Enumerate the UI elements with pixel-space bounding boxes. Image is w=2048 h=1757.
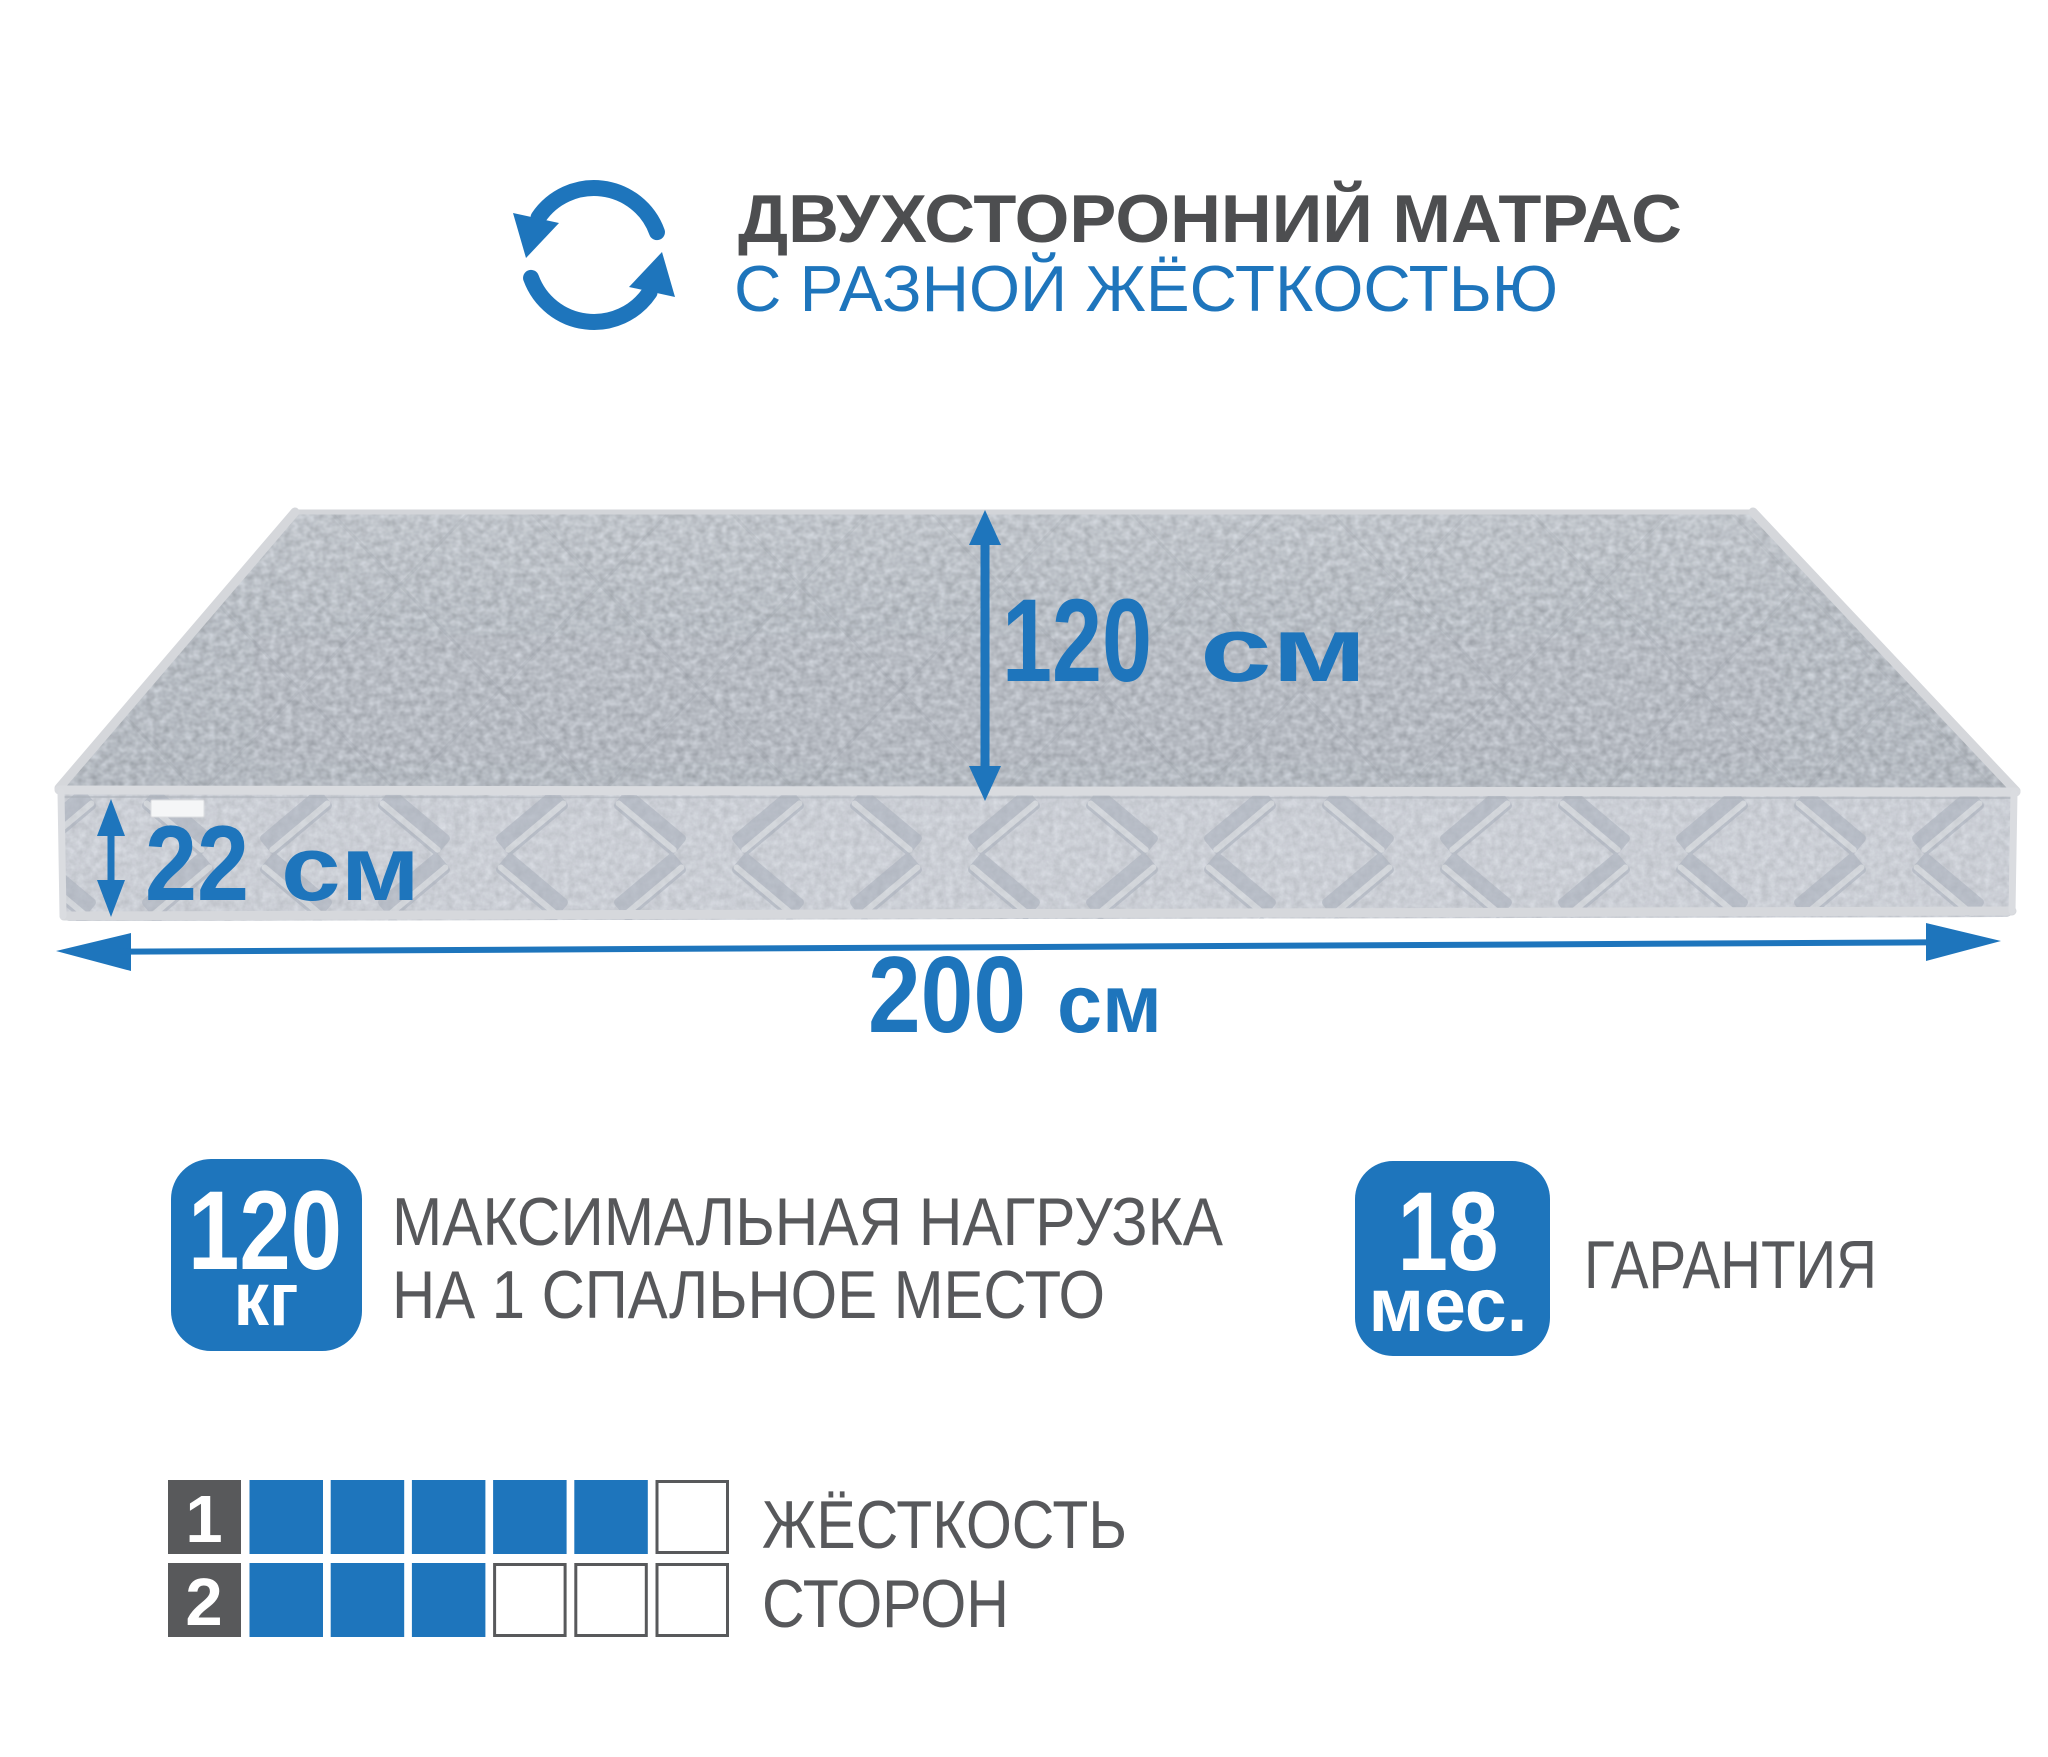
svg-text:СТОРОН: СТОРОН: [762, 1566, 1009, 1642]
svg-text:ДВУХСТОРОННИЙ МАТРАС: ДВУХСТОРОННИЙ МАТРАС: [738, 180, 1682, 257]
svg-text:МАКСИМАЛЬНАЯ НАГРУЗКА: МАКСИМАЛЬНАЯ НАГРУЗКА: [392, 1184, 1224, 1260]
svg-text:120: 120: [1002, 575, 1152, 707]
svg-text:см: см: [1200, 599, 1367, 701]
svg-text:22: 22: [145, 803, 249, 923]
svg-text:ГАРАНТИЯ: ГАРАНТИЯ: [1584, 1227, 1877, 1303]
svg-text:2: 2: [185, 1565, 222, 1640]
svg-text:кг: кг: [234, 1257, 299, 1342]
svg-text:200: 200: [868, 934, 1026, 1056]
svg-text:см: см: [281, 818, 420, 920]
svg-text:С РАЗНОЙ ЖЁСТКОСТЬЮ: С РАЗНОЙ ЖЁСТКОСТЬЮ: [734, 252, 1558, 325]
svg-text:мес.: мес.: [1369, 1263, 1528, 1348]
svg-text:ЖЁСТКОСТЬ: ЖЁСТКОСТЬ: [762, 1487, 1127, 1563]
svg-text:НА 1 СПАЛЬНОЕ МЕСТО: НА 1 СПАЛЬНОЕ МЕСТО: [392, 1257, 1105, 1333]
svg-text:см: см: [1057, 957, 1162, 1050]
svg-text:1: 1: [185, 1482, 222, 1557]
